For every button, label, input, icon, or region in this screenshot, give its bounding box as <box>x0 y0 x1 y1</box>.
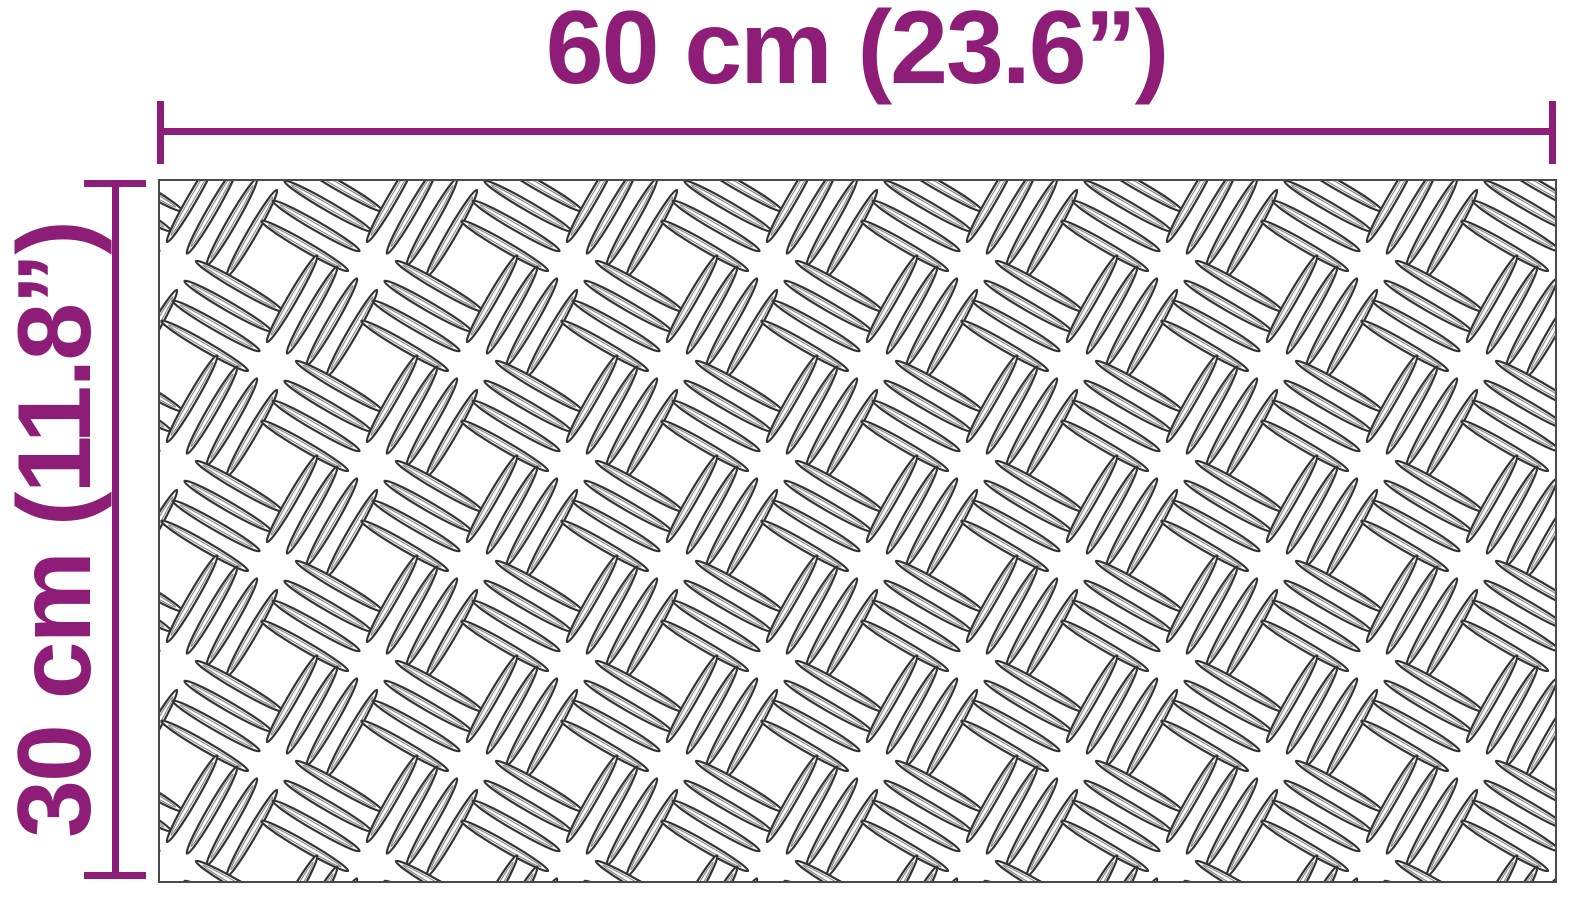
checker-plate-texture-icon <box>160 181 1555 881</box>
height-dimension-tick-bottom <box>84 872 146 879</box>
width-dimension-line <box>160 128 1553 135</box>
height-dimension-line <box>112 183 119 879</box>
width-dimension-label: 60 cm (23.6”) <box>160 0 1553 100</box>
height-dimension-tick-top <box>84 180 146 187</box>
width-dimension-tick-right <box>1549 101 1556 164</box>
height-dimension-label: 30 cm (11.8”) <box>3 222 107 838</box>
width-dimension-tick-left <box>157 101 164 164</box>
checker-plate <box>158 179 1557 883</box>
